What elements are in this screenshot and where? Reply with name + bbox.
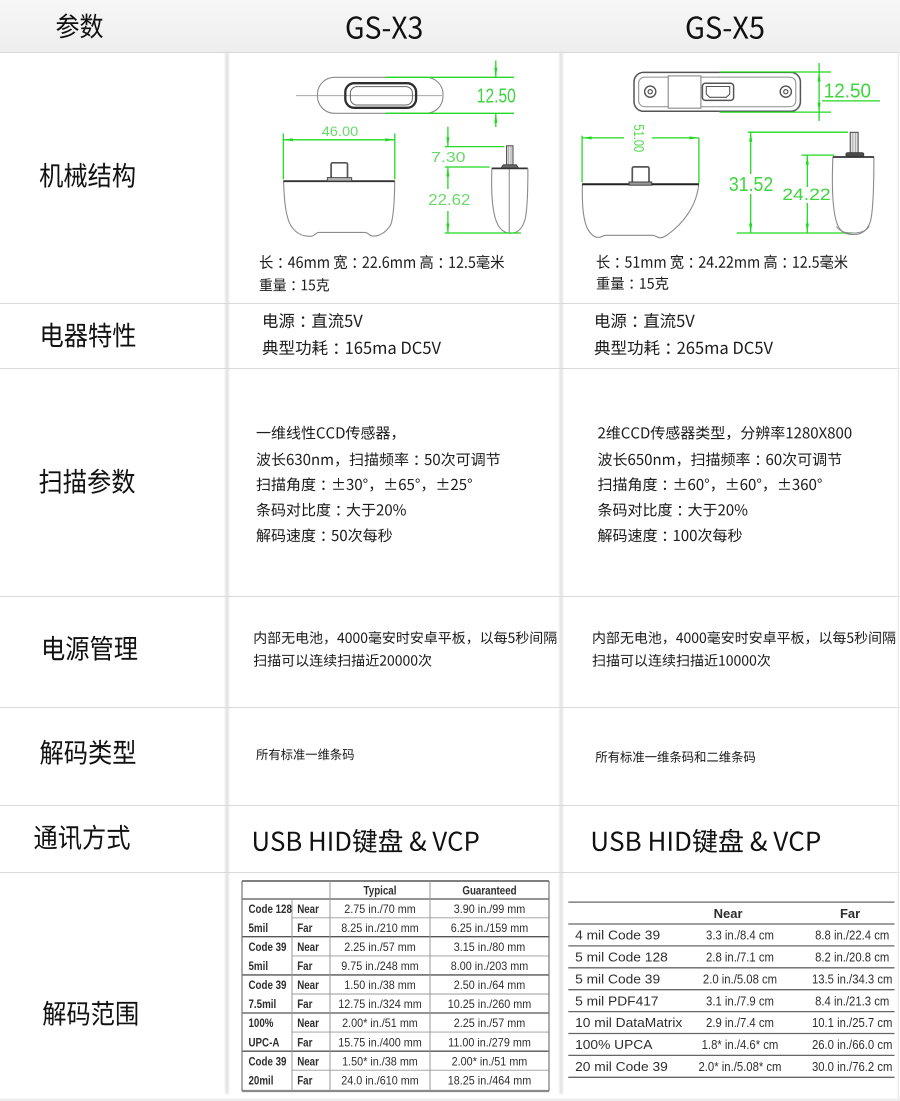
svg-text:22.62: 22.62 <box>428 192 470 209</box>
svg-text:24.0 in./610 mm: 24.0 in./610 mm <box>341 1073 418 1087</box>
svg-text:Typical: Typical <box>364 883 397 897</box>
svg-text:3.1 in./7.9 cm: 3.1 in./7.9 cm <box>706 993 774 1008</box>
svg-text:10.25 in./260 mm: 10.25 in./260 mm <box>448 997 531 1011</box>
svg-text:10.1 in./25.7 cm: 10.1 in./25.7 cm <box>812 1015 892 1030</box>
svg-text:2.8 in./7.1 cm: 2.8 in./7.1 cm <box>706 949 774 964</box>
svg-text:Guaranteed: Guaranteed <box>462 883 516 897</box>
svg-text:10 mil DataMatrix: 10 mil DataMatrix <box>575 1015 683 1030</box>
svg-text:2.0* in./5.08* cm: 2.0* in./5.08* cm <box>699 1059 782 1074</box>
svg-text:26.0 in./66.0 cm: 26.0 in./66.0 cm <box>812 1037 892 1052</box>
svg-text:11.00 in./279 mm: 11.00 in./279 mm <box>448 1035 531 1049</box>
svg-text:Far: Far <box>297 997 312 1011</box>
svg-text:13.5 in./34.3 cm: 13.5 in./34.3 cm <box>812 971 892 986</box>
svg-text:7.5mil: 7.5mil <box>249 997 277 1011</box>
svg-text:Far: Far <box>297 959 312 973</box>
svg-text:20 mil Code 39: 20 mil Code 39 <box>575 1059 668 1074</box>
svg-text:Code 39: Code 39 <box>249 978 287 992</box>
svg-text:8.8 in./22.4 cm: 8.8 in./22.4 cm <box>815 928 889 943</box>
svg-text:Near: Near <box>297 978 319 992</box>
svg-text:1.8* in./4.6* cm: 1.8* in./4.6* cm <box>702 1037 779 1052</box>
svg-text:12.50: 12.50 <box>477 86 516 108</box>
svg-text:4 mil Code 39: 4 mil Code 39 <box>575 928 660 943</box>
svg-text:100%: 100% <box>249 1016 274 1030</box>
svg-text:1.50* in./38 mm: 1.50* in./38 mm <box>342 1054 418 1068</box>
svg-text:30.0 in./76.2 cm: 30.0 in./76.2 cm <box>812 1059 892 1074</box>
svg-text:5 mil Code 128: 5 mil Code 128 <box>575 949 668 964</box>
svg-text:2.0 in./5.08 cm: 2.0 in./5.08 cm <box>703 971 777 986</box>
svg-text:20mil: 20mil <box>249 1073 274 1087</box>
svg-text:12.50: 12.50 <box>824 81 871 103</box>
svg-text:Near: Near <box>714 906 743 921</box>
svg-text:5mil: 5mil <box>249 959 269 973</box>
svg-text:8.2 in./20.8 cm: 8.2 in./20.8 cm <box>815 949 889 964</box>
svg-text:51.00: 51.00 <box>630 124 647 152</box>
svg-text:2.9 in./7.4 cm: 2.9 in./7.4 cm <box>706 1015 774 1030</box>
svg-text:8.00 in./203 mm: 8.00 in./203 mm <box>451 959 528 973</box>
svg-text:46.00: 46.00 <box>322 124 359 139</box>
svg-text:18.25 in./464 mm: 18.25 in./464 mm <box>448 1073 531 1087</box>
svg-text:3.90 in./99 mm: 3.90 in./99 mm <box>454 902 525 916</box>
svg-text:5 mil Code 39: 5 mil Code 39 <box>575 971 660 986</box>
svg-text:Near: Near <box>297 1054 319 1068</box>
svg-text:UPC-A: UPC-A <box>249 1035 280 1049</box>
svg-text:Far: Far <box>297 921 312 935</box>
svg-text:Near: Near <box>297 1016 319 1030</box>
svg-text:31.52: 31.52 <box>729 174 773 196</box>
svg-text:8.4 in./21.3 cm: 8.4 in./21.3 cm <box>815 993 889 1008</box>
svg-text:15.75 in./400 mm: 15.75 in./400 mm <box>338 1035 421 1049</box>
svg-text:8.25 in./210 mm: 8.25 in./210 mm <box>341 921 418 935</box>
svg-text:12.75 in./324 mm: 12.75 in./324 mm <box>338 997 421 1011</box>
svg-text:3.15 in./80 mm: 3.15 in./80 mm <box>454 940 525 954</box>
svg-text:9.75 in./248 mm: 9.75 in./248 mm <box>341 959 418 973</box>
svg-text:5 mil PDF417: 5 mil PDF417 <box>575 993 658 1008</box>
svg-text:2.25 in./57 mm: 2.25 in./57 mm <box>454 1016 525 1030</box>
svg-text:5mil: 5mil <box>249 921 269 935</box>
svg-text:2.25 in./57 mm: 2.25 in./57 mm <box>344 940 415 954</box>
svg-text:3.3 in./8.4 cm: 3.3 in./8.4 cm <box>706 928 774 943</box>
svg-text:2.50 in./64 mm: 2.50 in./64 mm <box>454 978 525 992</box>
svg-text:24.22: 24.22 <box>782 186 830 204</box>
svg-text:2.00* in./51 mm: 2.00* in./51 mm <box>452 1054 528 1068</box>
svg-text:Near: Near <box>297 902 319 916</box>
svg-text:1.50 in./38 mm: 1.50 in./38 mm <box>344 978 415 992</box>
svg-text:Code 39: Code 39 <box>249 1054 287 1068</box>
svg-text:Far: Far <box>297 1073 312 1087</box>
svg-text:2.00* in./51 mm: 2.00* in./51 mm <box>342 1016 418 1030</box>
svg-text:Far: Far <box>297 1035 312 1049</box>
svg-text:100% UPCA: 100% UPCA <box>575 1037 653 1052</box>
svg-text:Far: Far <box>840 906 860 921</box>
svg-text:6.25 in./159 mm: 6.25 in./159 mm <box>451 921 528 935</box>
svg-text:Code 39: Code 39 <box>249 940 287 954</box>
svg-text:Code 128: Code 128 <box>249 902 293 916</box>
svg-text:Near: Near <box>297 940 319 954</box>
svg-text:2.75 in./70 mm: 2.75 in./70 mm <box>344 902 415 916</box>
svg-text:7.30: 7.30 <box>431 149 466 166</box>
